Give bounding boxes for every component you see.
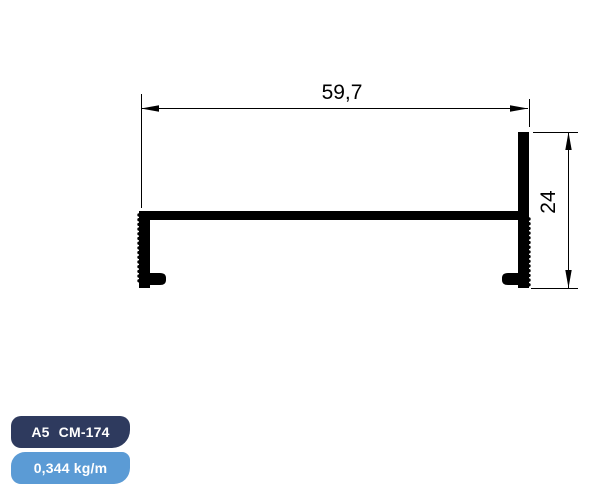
part-code-label: CM-174 (59, 424, 110, 440)
dimension-width-value: 59,7 (322, 81, 363, 104)
arrowhead-right-icon (510, 105, 528, 111)
profile-top-web (139, 211, 519, 220)
arrowhead-down-icon (565, 270, 571, 288)
arrowhead-left-icon (141, 105, 159, 111)
dimension-height: 24 (531, 132, 578, 289)
weight-label: 0,344 kg/m (34, 460, 108, 476)
profile-cross-section (139, 132, 529, 288)
profile-drawing-page: 59,7 24 A5 CM-174 0,344 kg/m (0, 0, 616, 493)
dimension-height-value: 24 (537, 190, 560, 214)
part-series-label: A5 (31, 424, 49, 440)
dimension-width: 59,7 (141, 81, 530, 208)
profile-right-foot (502, 273, 518, 285)
part-code-badge: A5 CM-174 (11, 416, 130, 448)
profile-right-flange (518, 132, 529, 288)
arrowhead-up-icon (565, 132, 571, 150)
weight-badge: 0,344 kg/m (11, 452, 130, 484)
profile-left-foot (150, 273, 166, 285)
